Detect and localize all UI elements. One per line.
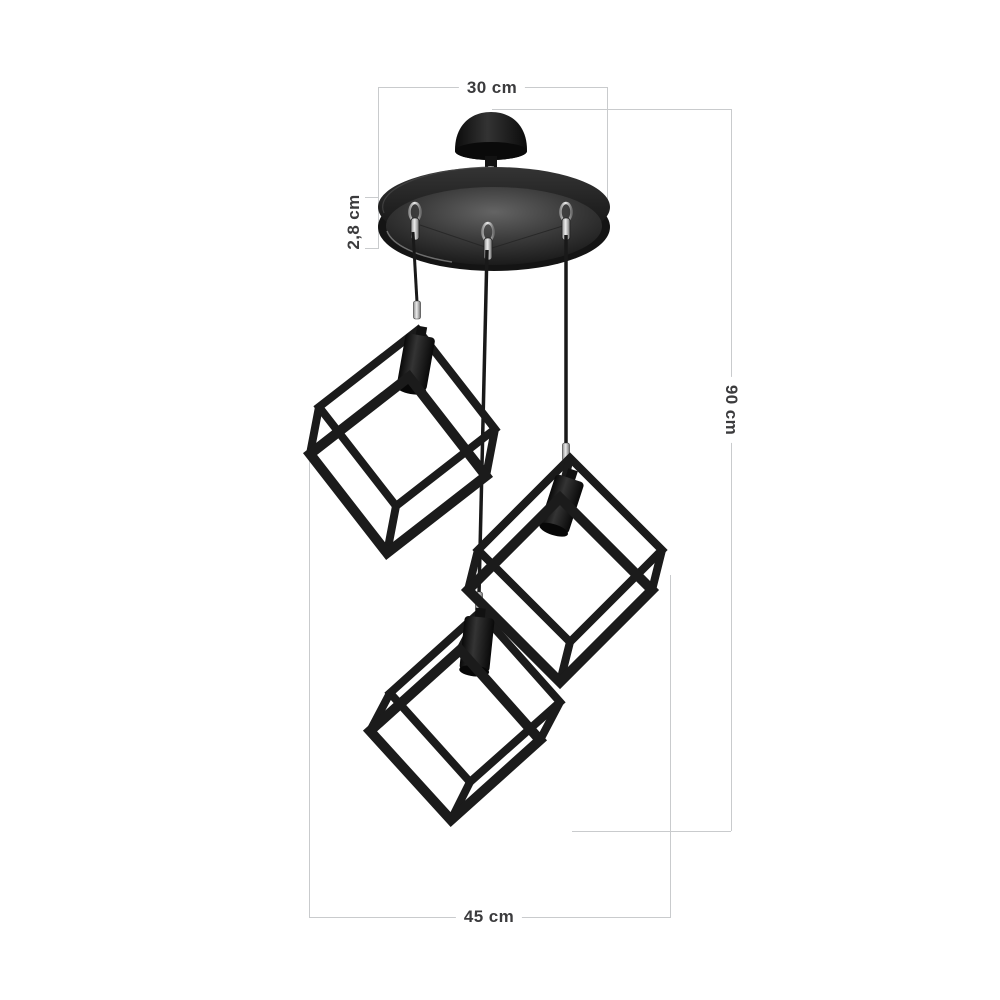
cable-connector-1 (414, 301, 421, 319)
product-dimension-diagram: 30 cm 2,8 cm 90 cm 45 cm (0, 0, 1000, 1000)
cube-shade-2 (468, 458, 662, 682)
dimension-label-plate-diameter: 30 cm (459, 77, 525, 99)
cube1-front-face (310, 377, 486, 553)
cube-shade-3 (370, 607, 560, 820)
mounting-plate (378, 167, 610, 271)
cube3-front-face (370, 650, 540, 820)
pendant-light-illustration (0, 0, 1000, 1000)
dimension-label-overall-width: 45 cm (456, 906, 522, 928)
dimension-label-hanging-height: 90 cm (720, 377, 742, 443)
ceiling-canopy (455, 112, 527, 174)
dimension-label-plate-thickness: 2,8 cm (343, 186, 365, 257)
cube-shade-1 (310, 324, 495, 553)
